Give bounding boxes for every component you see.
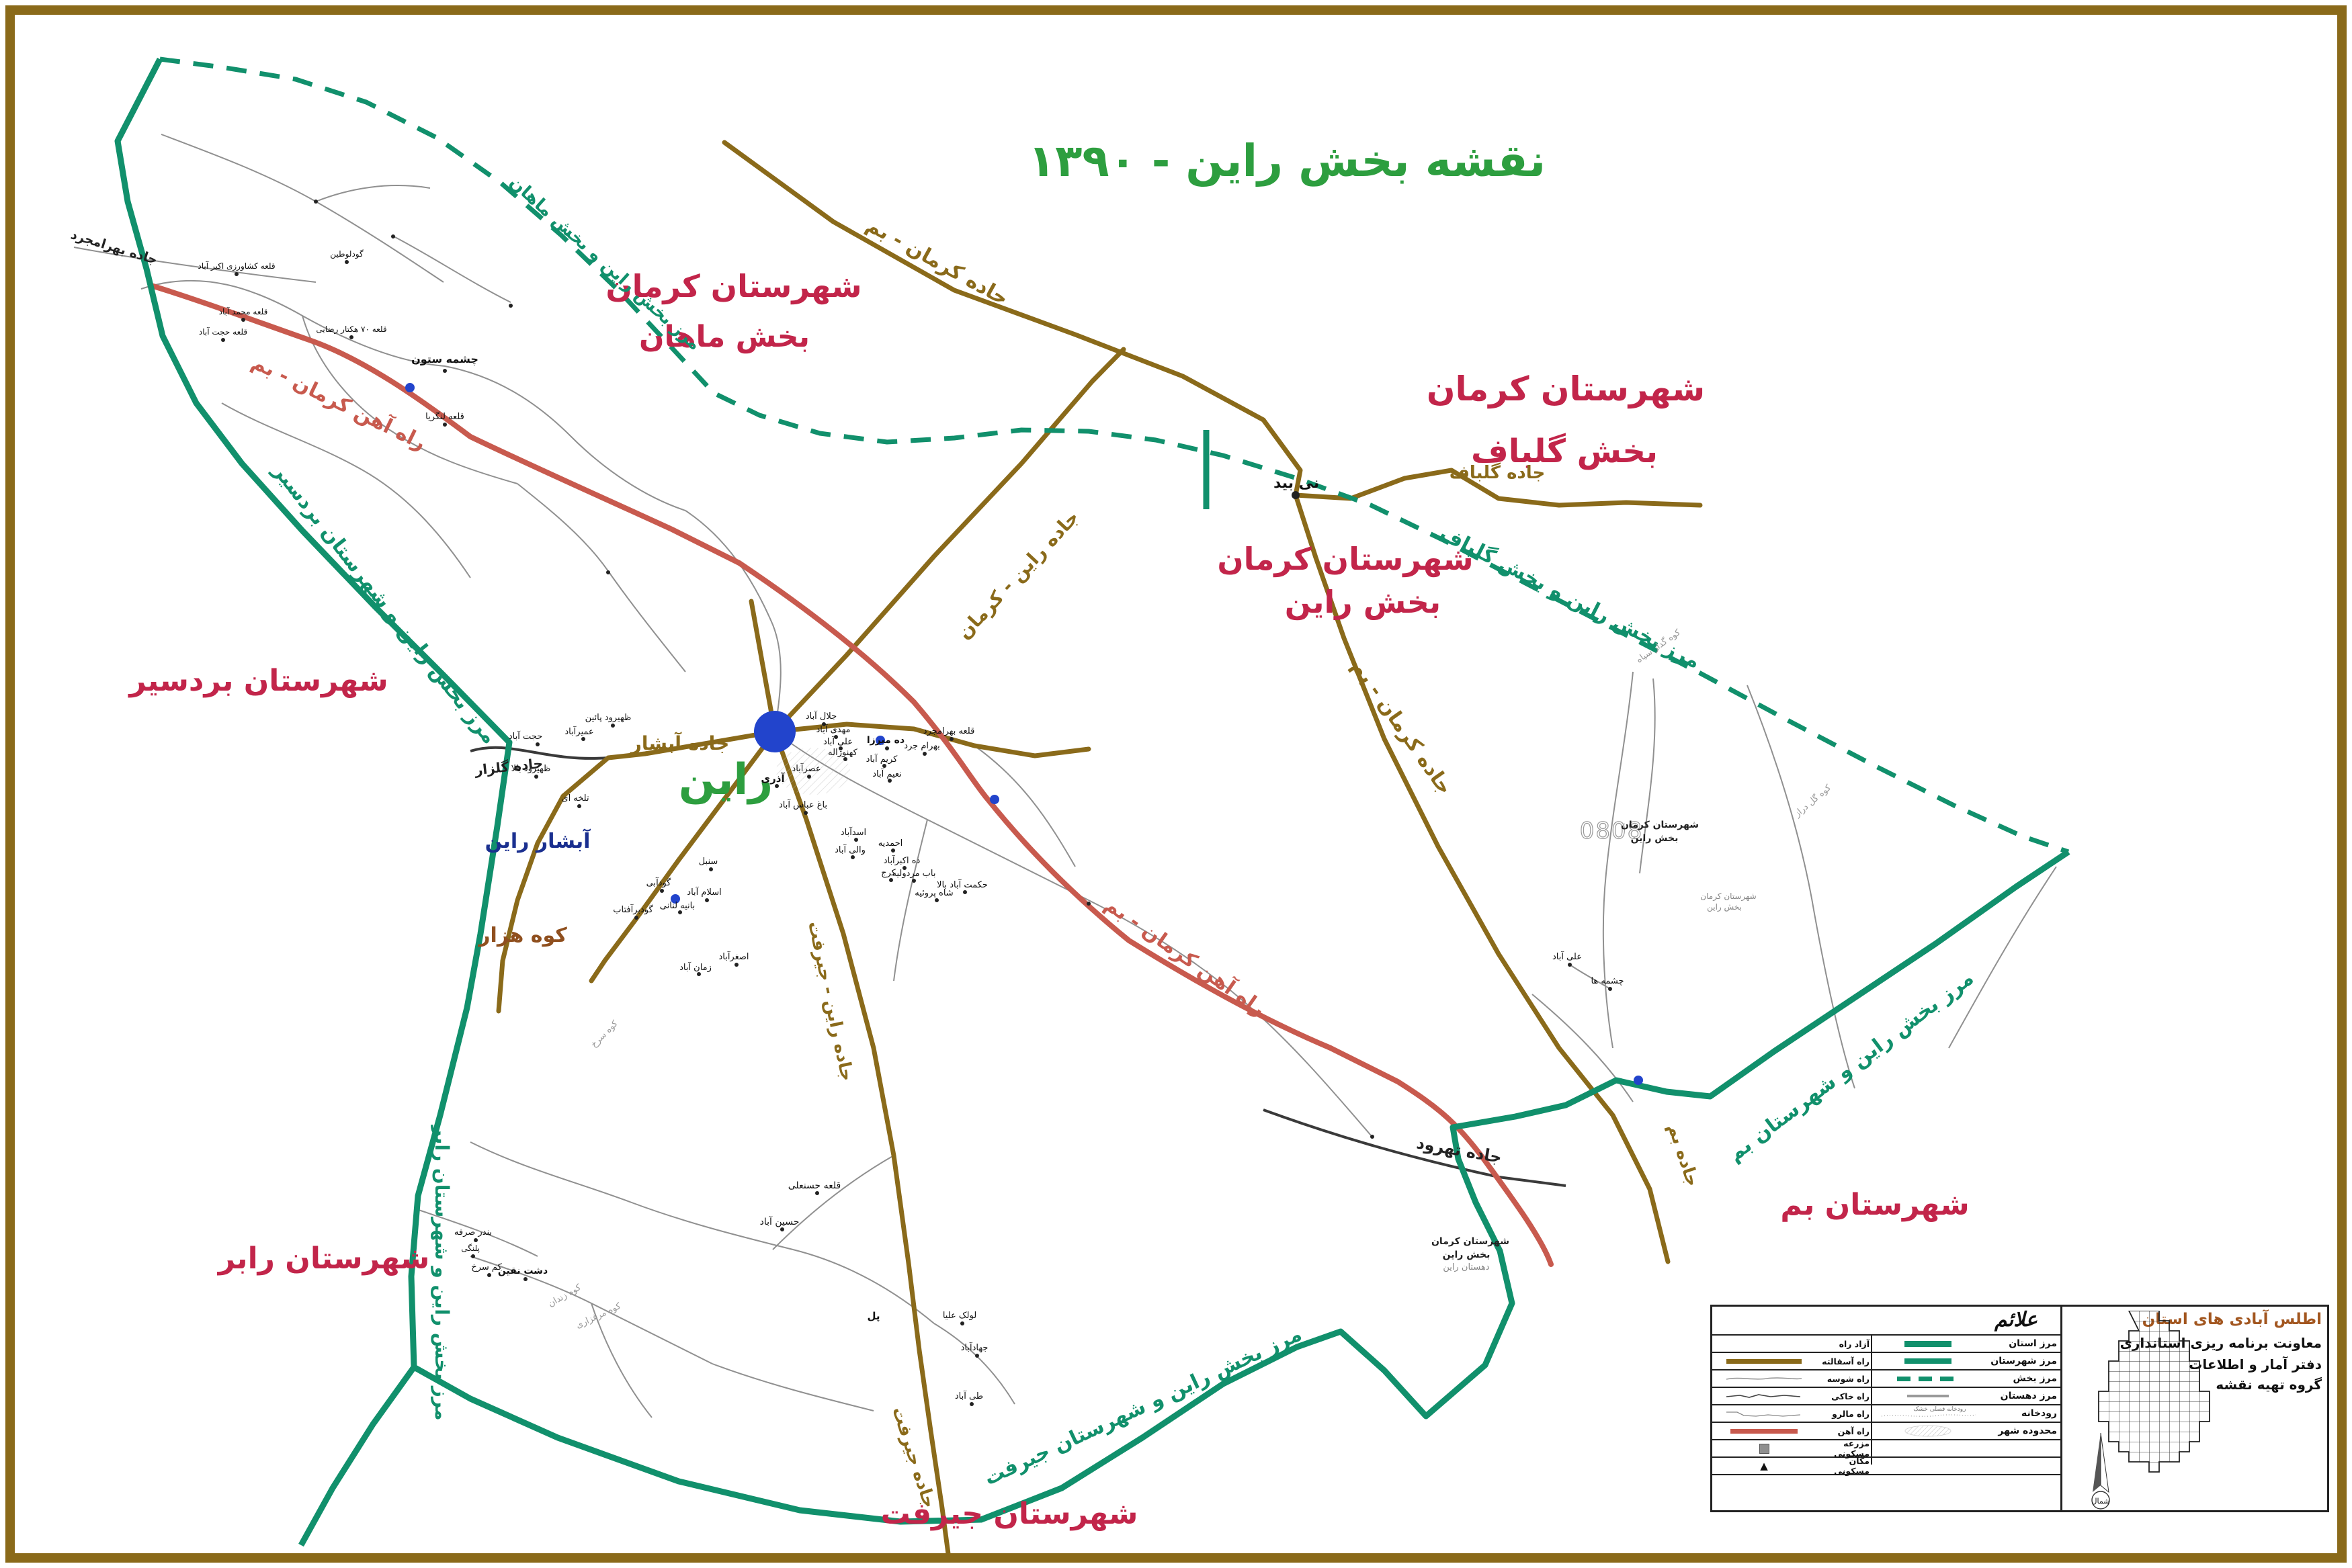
village-label: ده اکبرآباد bbox=[884, 855, 921, 866]
road-rain-kerman bbox=[775, 349, 1124, 732]
legend-label: راه آهن bbox=[1816, 1423, 1871, 1439]
legend-table: مرز استان آزاد راه مرز شهرستان راه آسفال… bbox=[1712, 1334, 2060, 1475]
road-label-bahramjerd: جاده بهرامجرد bbox=[69, 227, 159, 267]
road-label-rain-jiroft: جاده راین - جیرفت bbox=[804, 920, 857, 1083]
note-c2: بخش راین bbox=[1707, 902, 1742, 912]
village-label: قلعه لنگریا bbox=[425, 411, 464, 422]
road-label-golbaf: جاده گلباف bbox=[1450, 462, 1546, 483]
village-label: لولک علیا bbox=[943, 1311, 976, 1321]
village-label: قلعه حجت آباد bbox=[199, 326, 247, 337]
legend-empty bbox=[1984, 1458, 2060, 1474]
legend-column-divider bbox=[1871, 1334, 1872, 1465]
legend-header: علائم bbox=[1962, 1308, 2070, 1332]
legend-label: مزرعه مسکونی bbox=[1816, 1440, 1871, 1456]
road-kerman-bam-top bbox=[724, 142, 1300, 495]
village-label: باب مردولیه bbox=[892, 869, 935, 879]
legend-info-panel: اطلس آبادی های استان معاونت برنامه ریزی … bbox=[2062, 1307, 2327, 1510]
village-label: حجت آباد bbox=[509, 730, 542, 742]
village-label: قلعه کشاورزی اکبر آباد bbox=[198, 261, 275, 271]
village-label: اصغرآباد bbox=[718, 951, 749, 962]
village-label: بندر صرفه bbox=[454, 1227, 492, 1237]
village-label: احمدیه bbox=[878, 838, 903, 848]
legend-label: راه آسفالته bbox=[1816, 1353, 1871, 1369]
legend-row: مرز شهرستان راه آسفالته bbox=[1712, 1352, 2060, 1369]
legend-label: مرز استان bbox=[1984, 1336, 2060, 1352]
railway-kerman-bam bbox=[151, 286, 1551, 1264]
village-label: گودبرآفتاب bbox=[613, 904, 653, 915]
village-label: قلعه محمد آباد bbox=[219, 306, 268, 316]
legend-label: راه شوسه bbox=[1816, 1370, 1871, 1387]
village-label: باغ عباس آباد bbox=[779, 799, 827, 810]
village-label: کهنوژاله bbox=[828, 748, 857, 758]
village-label: قلعه ۷۰ هکتار رضایی bbox=[316, 324, 386, 335]
mountain-label: کوه گل دراز bbox=[1792, 782, 1833, 820]
road-label-kerman-bam-top: جاده کرمان - بم bbox=[862, 213, 1012, 310]
legend-empty bbox=[1871, 1458, 1984, 1474]
region-kerman-rain-1: شهرستان کرمان bbox=[1217, 541, 1473, 577]
village-label: چشمه ها bbox=[1591, 976, 1624, 986]
village-label: پل bbox=[867, 1310, 880, 1323]
village-label: بانیه لنانی bbox=[660, 901, 696, 911]
legend-empty bbox=[1871, 1440, 1984, 1456]
note-a2: بخش راین bbox=[1631, 833, 1679, 844]
village-label: ظهیرود بالا bbox=[511, 764, 551, 774]
settlement-symbol: ▲ bbox=[1712, 1458, 1816, 1474]
village-label: حکمت آباد بالا bbox=[937, 879, 988, 890]
dirt-road-symbol bbox=[1712, 1388, 1816, 1404]
village-label: تلخه ای bbox=[561, 793, 589, 803]
border-label-mahan: مرز بخش راین و بخش ماهان bbox=[505, 172, 705, 354]
region-bardsir: شهرستان بردسیر bbox=[128, 664, 388, 698]
farm-symbol bbox=[1712, 1440, 1816, 1456]
railway-label-center: راه آهن کرمان - بم bbox=[1100, 891, 1271, 1021]
rural-border-symbol bbox=[1871, 1388, 1984, 1404]
village-label: اسدآباد bbox=[841, 826, 866, 838]
village-label: اسلام آباد bbox=[687, 886, 721, 898]
region-rabor: شهرستان رابر bbox=[217, 1242, 430, 1276]
village-label: والی آباد bbox=[835, 844, 866, 855]
village-label: نی بید bbox=[1273, 475, 1319, 492]
note-a1: شهرستان کرمان bbox=[1621, 820, 1699, 830]
village-label: دشت نقین bbox=[498, 1266, 548, 1276]
village-label: حسین آباد bbox=[760, 1216, 800, 1227]
village-label: علی آباد bbox=[823, 736, 853, 747]
village-label: جهادآباد bbox=[961, 1342, 989, 1353]
district-border-symbol bbox=[1871, 1370, 1984, 1387]
village-label: مهدی آباد bbox=[816, 724, 850, 735]
road-label-jiroft: جاده جیرفت bbox=[888, 1405, 939, 1511]
asphalt-road-symbol bbox=[1712, 1353, 1816, 1369]
abshar-rain-label: آبشار راین bbox=[485, 828, 591, 853]
village-label: عصرآباد bbox=[792, 763, 821, 774]
road-rain-jiroft bbox=[775, 732, 949, 1559]
legend-label: محدوده شهر bbox=[1984, 1423, 2060, 1439]
border-solid bbox=[118, 59, 2068, 1522]
border-label-golbaf: مرز بخش راین و بخش گلباف bbox=[1436, 521, 1704, 673]
village-label: کریم آباد bbox=[866, 753, 898, 765]
border-label-bam: مرز بخش راین و شهرستان بم bbox=[1724, 967, 1978, 1166]
road-label-abshar: جاده آبشار bbox=[630, 732, 730, 754]
mule-track-symbol bbox=[1712, 1405, 1816, 1422]
village-label: ده میرزا bbox=[867, 735, 905, 746]
gravel-road-symbol bbox=[1712, 1370, 1816, 1387]
legend-row: مرز استان آزاد راه bbox=[1712, 1334, 2060, 1352]
north-arrow: شمال bbox=[2089, 1432, 2112, 1511]
village-label: زمان آباد bbox=[679, 961, 712, 973]
freeway-symbol bbox=[1712, 1336, 1816, 1352]
legend-label: مرز دهستان bbox=[1984, 1388, 2060, 1404]
legend-row: مرز بخش راه شوسه bbox=[1712, 1369, 2060, 1387]
legend-row: مکان مسکونی ▲ bbox=[1712, 1456, 2060, 1475]
village-label: گودآبی bbox=[646, 877, 672, 888]
north-label: شمال bbox=[2092, 1497, 2110, 1506]
village-label: چشمه ستون bbox=[411, 353, 478, 366]
village-label: آذری bbox=[761, 773, 785, 785]
border-label-jiroft: مرز بخش راین و شهرستان جیرفت bbox=[980, 1322, 1305, 1490]
region-kerman-golbaf-1: شهرستان کرمان bbox=[1427, 369, 1705, 409]
north-arrow-dark-half bbox=[2093, 1433, 2101, 1492]
note-c1: شهرستان کرمان bbox=[1700, 891, 1756, 902]
legend-row: مزرعه مسکونی bbox=[1712, 1439, 2060, 1456]
legend-label: راه مالرو bbox=[1816, 1405, 1871, 1422]
note-b1: شهرستان کرمان bbox=[1431, 1236, 1509, 1247]
legend-row: مرز دهستان راه خاکی bbox=[1712, 1387, 2060, 1404]
region-bam: شهرستان بم bbox=[1780, 1188, 1969, 1222]
village-label: قلعه حسنعلی bbox=[788, 1180, 841, 1191]
village-label: علی آباد bbox=[1552, 951, 1582, 962]
note-b3: دهستان راین bbox=[1443, 1262, 1489, 1272]
city-limit-symbol bbox=[1871, 1423, 1984, 1439]
map-page: نقشه بخش راین - ۱۳۹۰ شهرستان کرمان بخش م… bbox=[0, 0, 2352, 1568]
rain-city-marker bbox=[754, 711, 796, 752]
county-border-symbol bbox=[1871, 1353, 1984, 1369]
road-label-rain-kerman: جاده راین - کرمان bbox=[953, 506, 1083, 644]
village-label: سنبل bbox=[699, 857, 718, 867]
secondary-roads bbox=[470, 748, 1566, 1186]
kuh-hezar-label: کوه هزار bbox=[477, 924, 567, 947]
north-arrow-light-half bbox=[2101, 1433, 2109, 1492]
legend-panel: علائم مرز استان آزاد راه مرز شهرستان راه… bbox=[1710, 1305, 2329, 1512]
legend-label: راه خاکی bbox=[1816, 1388, 1871, 1404]
region-kerman-rain-2: بخش راین bbox=[1285, 584, 1441, 620]
railway-symbol bbox=[1712, 1423, 1816, 1439]
village-label: قلعه بهرامجرد bbox=[923, 726, 975, 736]
border-label-rabor: مرز بخش راین و شهرستان رابر bbox=[431, 1124, 453, 1420]
village-label: کم سرخ bbox=[471, 1262, 502, 1272]
legend-row: رودخانه رودخانه فصلی خشک راه مالرو bbox=[1712, 1404, 2060, 1422]
legend-label: مرز شهرستان bbox=[1984, 1353, 2060, 1369]
village-dots bbox=[221, 200, 1612, 1406]
province-border-symbol bbox=[1871, 1336, 1984, 1352]
legend-label: مرز بخش bbox=[1984, 1370, 2060, 1387]
village-label: گودلوطین bbox=[330, 249, 364, 259]
village-label: جلال آباد bbox=[806, 710, 837, 722]
railway-label-top: راه آهن کرمان - بم bbox=[248, 349, 430, 455]
legend-row: محدوده شهر راه آهن bbox=[1712, 1422, 2060, 1439]
river-symbol: رودخانه فصلی خشک bbox=[1871, 1405, 1984, 1422]
road-tahrud bbox=[1263, 1110, 1566, 1186]
note-b2: بخش راین bbox=[1443, 1250, 1490, 1260]
village-label: بهرام جرد bbox=[904, 741, 940, 751]
village-label: پلنگی bbox=[461, 1244, 480, 1253]
mountain-label: کوه سرخ bbox=[589, 1018, 620, 1050]
legend-label: مکان مسکونی bbox=[1816, 1458, 1871, 1474]
map-title: نقشه بخش راین - ۱۳۹۰ bbox=[1028, 135, 1546, 187]
village-label: طی آباد bbox=[955, 1390, 983, 1401]
village-label: عمیرآباد bbox=[564, 726, 593, 737]
border-solid-branch bbox=[301, 1367, 414, 1545]
road-label-bam: جاده بم bbox=[1663, 1121, 1702, 1189]
legend-empty bbox=[1984, 1440, 2060, 1456]
mountain-label: کوه زندان bbox=[546, 1282, 583, 1309]
village-label: نعیم آباد bbox=[872, 768, 902, 779]
rain-city-label: راین bbox=[679, 755, 773, 805]
village-label: ظهیرود پائین bbox=[585, 713, 632, 723]
legend-label: آزاد راه bbox=[1816, 1336, 1871, 1352]
legend-label: رودخانه bbox=[1984, 1405, 2060, 1422]
border-label-bardsir: مرز بخش راین و شهرستان بردسیر bbox=[267, 458, 501, 748]
